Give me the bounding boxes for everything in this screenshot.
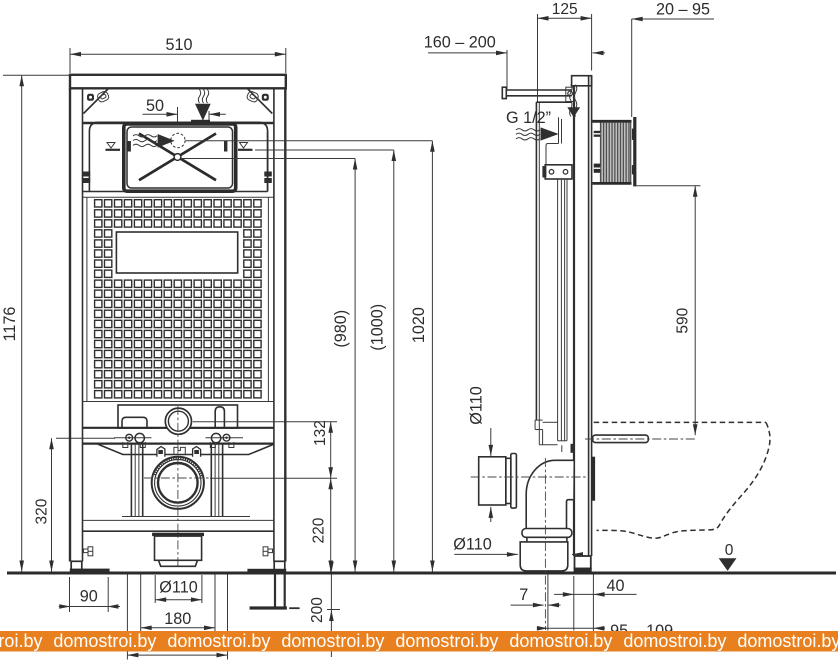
svg-text:50: 50 (146, 97, 164, 115)
svg-text:domostroi.by: domostroi.by (395, 631, 498, 651)
svg-text:Ø110: Ø110 (159, 579, 197, 597)
svg-text:1020: 1020 (410, 307, 428, 343)
svg-text:Ø110: Ø110 (453, 536, 491, 554)
svg-text:domostroi.by: domostroi.by (53, 631, 156, 651)
svg-text:132: 132 (312, 420, 329, 446)
svg-text:0: 0 (725, 542, 734, 559)
svg-text:160 – 200: 160 – 200 (424, 34, 496, 52)
svg-text:40: 40 (606, 577, 624, 595)
svg-text:220: 220 (311, 517, 328, 543)
svg-text:125: 125 (552, 1, 578, 18)
svg-text:(1000): (1000) (368, 304, 386, 351)
svg-text:domostroi.by: domostroi.by (281, 631, 384, 651)
svg-text:20 – 95: 20 – 95 (656, 1, 710, 19)
svg-text:domostroi.by: domostroi.by (0, 631, 42, 651)
svg-text:1176: 1176 (1, 307, 19, 342)
svg-text:200: 200 (309, 597, 326, 623)
svg-text:180: 180 (164, 610, 191, 628)
svg-text:domostroi.by: domostroi.by (737, 631, 838, 651)
svg-text:510: 510 (165, 36, 192, 54)
svg-text:(980): (980) (332, 310, 350, 348)
svg-text:90: 90 (80, 588, 98, 606)
svg-text:7: 7 (519, 586, 528, 604)
svg-text:domostroi.by: domostroi.by (167, 631, 270, 651)
svg-text:domostroi.by: domostroi.by (509, 631, 612, 651)
svg-text:Ø110: Ø110 (468, 386, 486, 424)
svg-text:G 1/2”: G 1/2” (506, 109, 551, 127)
svg-text:domostroi.by: domostroi.by (623, 631, 726, 651)
svg-text:590: 590 (675, 307, 692, 333)
svg-text:320: 320 (34, 498, 51, 524)
